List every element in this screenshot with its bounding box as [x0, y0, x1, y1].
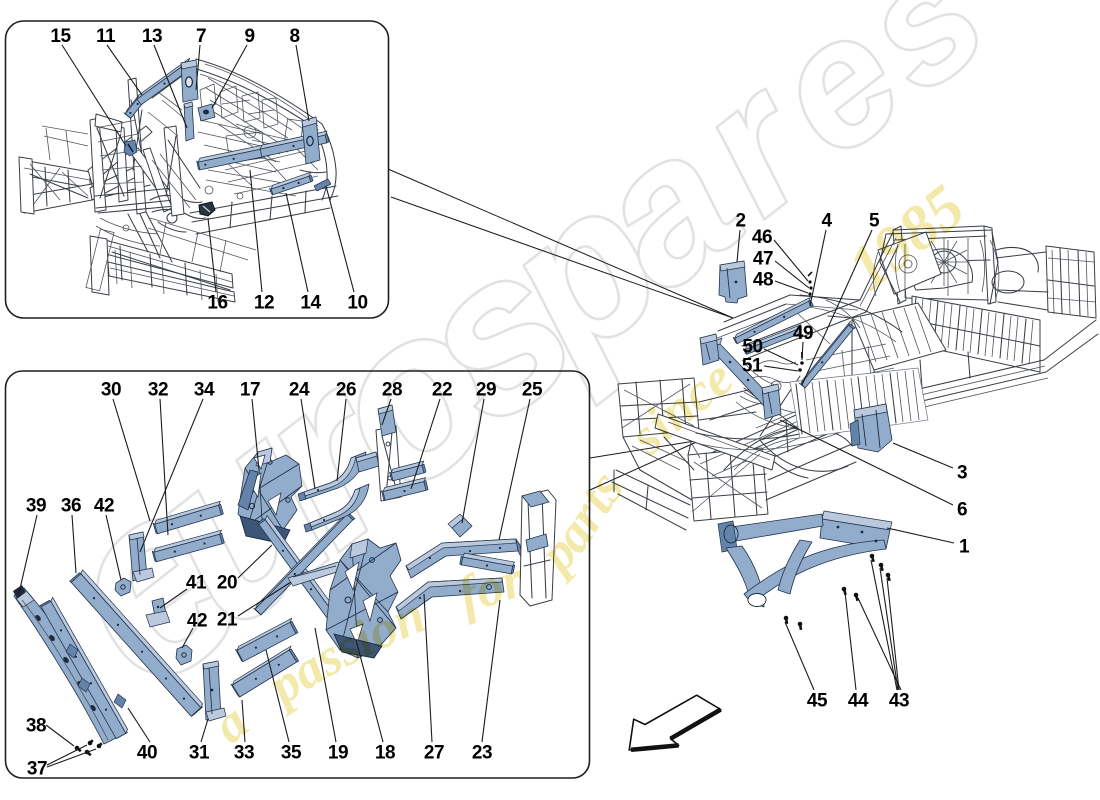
svg-text:21: 21 — [217, 610, 238, 631]
svg-text:37: 37 — [27, 759, 47, 780]
svg-text:29: 29 — [476, 380, 496, 401]
svg-text:44: 44 — [848, 691, 869, 712]
svg-text:4: 4 — [821, 211, 832, 232]
svg-text:28: 28 — [382, 380, 402, 401]
svg-text:38: 38 — [26, 716, 46, 737]
svg-text:42: 42 — [187, 611, 207, 632]
svg-text:24: 24 — [289, 380, 310, 401]
svg-text:19: 19 — [328, 743, 348, 764]
svg-text:51: 51 — [742, 356, 763, 377]
svg-text:32: 32 — [148, 380, 168, 401]
svg-text:34: 34 — [194, 380, 215, 401]
svg-text:43: 43 — [889, 691, 909, 712]
svg-text:23: 23 — [472, 743, 492, 764]
svg-text:48: 48 — [753, 270, 773, 291]
svg-text:45: 45 — [807, 691, 828, 712]
svg-text:16: 16 — [207, 293, 227, 314]
svg-text:27: 27 — [424, 743, 444, 764]
svg-text:11: 11 — [96, 26, 116, 47]
svg-text:46: 46 — [752, 227, 772, 248]
svg-text:2: 2 — [735, 211, 745, 232]
svg-text:18: 18 — [375, 743, 395, 764]
svg-text:31: 31 — [189, 743, 210, 764]
svg-text:25: 25 — [522, 380, 543, 401]
svg-text:26: 26 — [336, 380, 356, 401]
svg-text:41: 41 — [186, 573, 207, 594]
svg-text:50: 50 — [742, 337, 762, 358]
svg-text:22: 22 — [432, 380, 452, 401]
svg-text:1: 1 — [959, 537, 970, 558]
svg-text:47: 47 — [753, 249, 773, 270]
svg-text:35: 35 — [281, 743, 302, 764]
svg-text:8: 8 — [289, 26, 299, 47]
svg-text:39: 39 — [26, 496, 46, 517]
svg-text:12: 12 — [254, 293, 274, 314]
svg-text:13: 13 — [142, 26, 162, 47]
svg-text:15: 15 — [50, 26, 71, 47]
svg-text:14: 14 — [300, 293, 321, 314]
svg-text:10: 10 — [347, 293, 367, 314]
svg-text:36: 36 — [61, 496, 81, 517]
svg-text:3: 3 — [957, 463, 967, 484]
svg-text:7: 7 — [196, 26, 206, 47]
svg-text:20: 20 — [217, 573, 237, 594]
svg-text:40: 40 — [137, 743, 157, 764]
svg-text:9: 9 — [244, 26, 254, 47]
svg-text:17: 17 — [240, 380, 260, 401]
svg-text:6: 6 — [957, 500, 967, 521]
svg-text:42: 42 — [94, 496, 114, 517]
svg-text:30: 30 — [101, 380, 121, 401]
svg-text:49: 49 — [793, 323, 813, 344]
